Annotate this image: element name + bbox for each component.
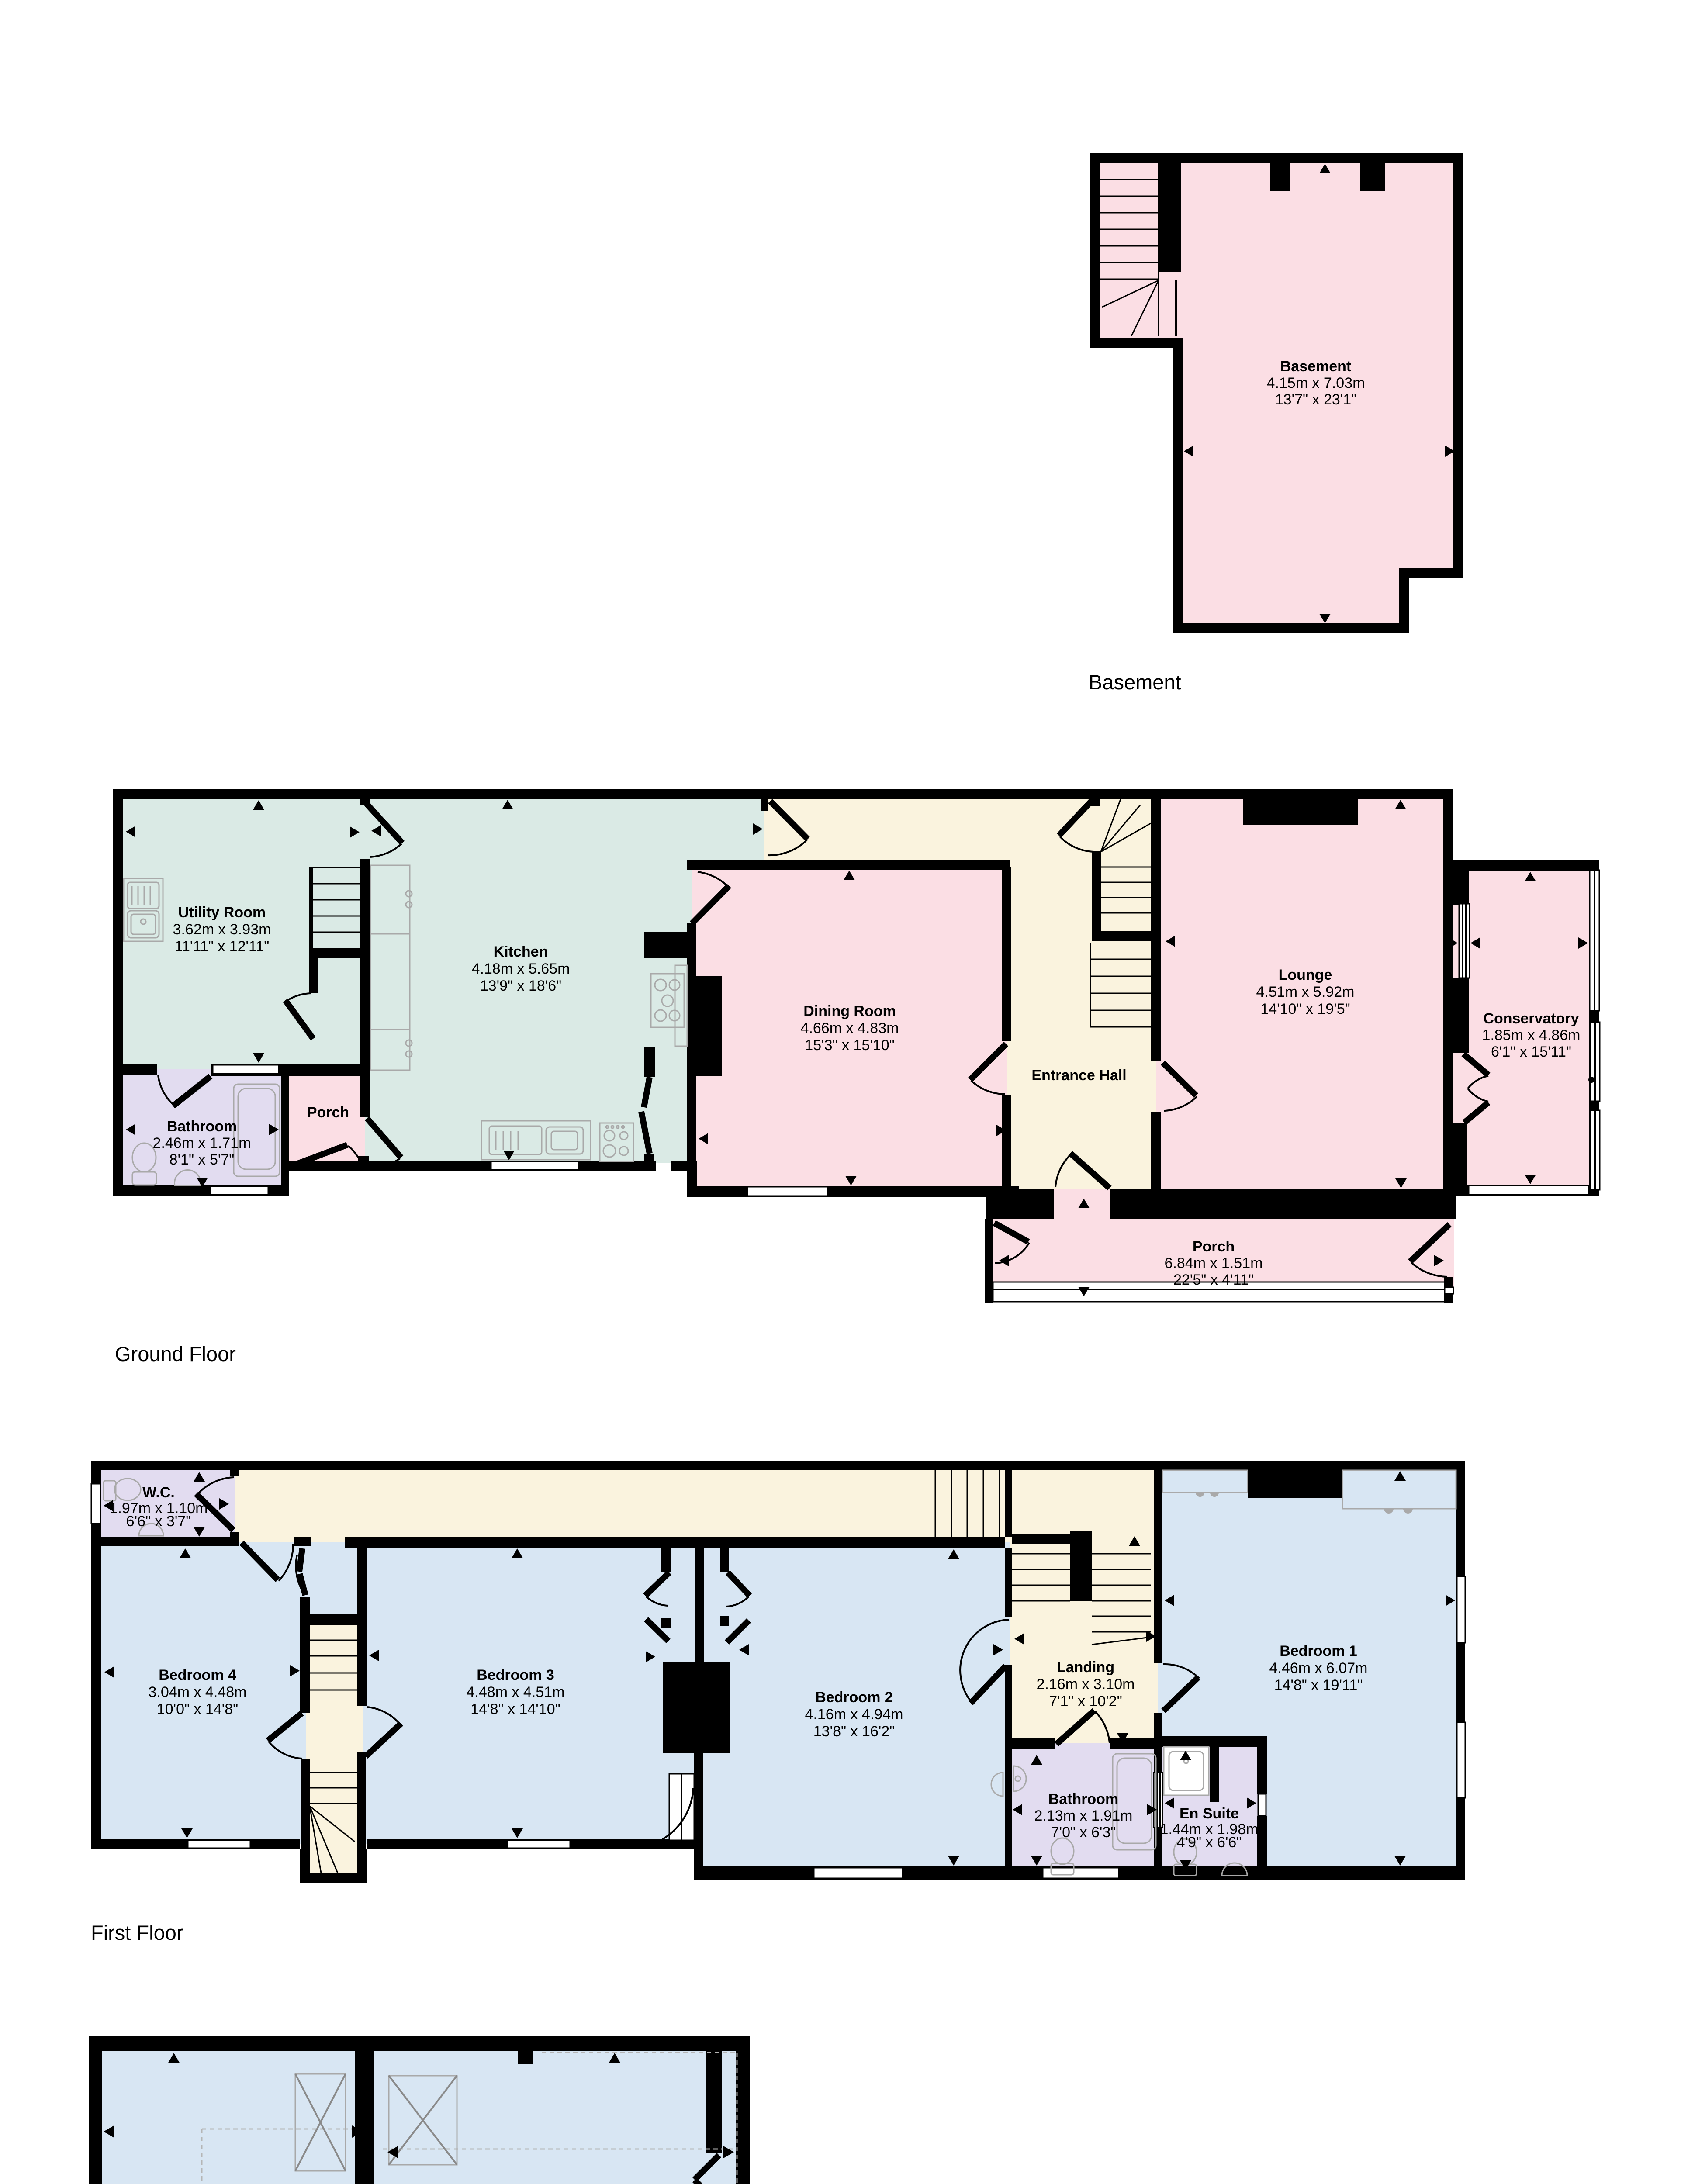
svg-text:Landing: Landing [1057, 1659, 1114, 1676]
svg-text:6'1" x 15'11": 6'1" x 15'11" [1491, 1044, 1571, 1060]
svg-text:11'11" x 12'11": 11'11" x 12'11" [175, 938, 270, 955]
svg-text:13'8" x 16'2": 13'8" x 16'2" [813, 1723, 895, 1740]
svg-text:4'9" x 6'6": 4'9" x 6'6" [1177, 1834, 1242, 1851]
svg-text:14'8" x 19'11": 14'8" x 19'11" [1274, 1677, 1363, 1693]
svg-text:6.84m x 1.51m: 6.84m x 1.51m [1165, 1255, 1263, 1272]
svg-text:Bedroom 4: Bedroom 4 [159, 1667, 236, 1683]
svg-text:4.51m x 5.92m: 4.51m x 5.92m [1256, 984, 1355, 1000]
svg-text:First Floor: First Floor [91, 1921, 183, 1944]
svg-text:Utility Room: Utility Room [178, 904, 266, 921]
svg-text:4.48m x 4.51m: 4.48m x 4.51m [467, 1684, 565, 1700]
svg-text:4.66m x 4.83m: 4.66m x 4.83m [801, 1020, 899, 1037]
svg-text:15'3" x 15'10": 15'3" x 15'10" [805, 1037, 894, 1054]
svg-text:2.46m x 1.71m: 2.46m x 1.71m [153, 1135, 251, 1151]
svg-text:2.13m x 1.91m: 2.13m x 1.91m [1034, 1807, 1133, 1824]
svg-text:2.16m x 3.10m: 2.16m x 3.10m [1037, 1676, 1135, 1693]
svg-text:14'8" x 14'10": 14'8" x 14'10" [470, 1701, 560, 1717]
svg-text:Porch: Porch [1193, 1238, 1235, 1255]
svg-text:Bedroom 1: Bedroom 1 [1280, 1643, 1357, 1659]
svg-text:4.16m x 4.94m: 4.16m x 4.94m [805, 1706, 903, 1723]
svg-text:Dining Room: Dining Room [803, 1003, 896, 1019]
svg-text:Conservatory: Conservatory [1483, 1010, 1579, 1027]
svg-text:Lounge: Lounge [1279, 967, 1332, 983]
svg-text:Basement: Basement [1280, 358, 1352, 375]
svg-text:Ground Floor: Ground Floor [115, 1342, 236, 1365]
svg-text:3.04m x 4.48m: 3.04m x 4.48m [149, 1684, 247, 1700]
svg-text:14'10" x 19'5": 14'10" x 19'5" [1260, 1001, 1350, 1017]
svg-text:Entrance Hall: Entrance Hall [1031, 1067, 1126, 1084]
svg-text:13'9" x 18'6": 13'9" x 18'6" [480, 978, 561, 994]
svg-text:7'1" x 10'2": 7'1" x 10'2" [1049, 1693, 1122, 1710]
svg-text:8'1" x 5'7": 8'1" x 5'7" [169, 1151, 235, 1168]
svg-text:13'7" x 23'1": 13'7" x 23'1" [1275, 391, 1356, 408]
svg-text:Bathroom: Bathroom [167, 1118, 237, 1135]
svg-text:4.46m x 6.07m: 4.46m x 6.07m [1269, 1660, 1368, 1676]
svg-text:Bedroom 3: Bedroom 3 [477, 1667, 554, 1683]
svg-text:7'0" x 6'3": 7'0" x 6'3" [1051, 1824, 1116, 1841]
svg-text:22'5" x 4'11": 22'5" x 4'11" [1173, 1272, 1254, 1288]
svg-text:Basement: Basement [1089, 670, 1181, 694]
svg-text:4.15m x 7.03m: 4.15m x 7.03m [1267, 375, 1365, 391]
svg-text:En Suite: En Suite [1180, 1805, 1239, 1822]
svg-text:W.C.: W.C. [142, 1484, 175, 1501]
svg-text:Bathroom: Bathroom [1048, 1791, 1119, 1807]
svg-text:Kitchen: Kitchen [494, 943, 548, 960]
svg-text:3.62m x 3.93m: 3.62m x 3.93m [173, 921, 271, 938]
svg-text:4.18m x 5.65m: 4.18m x 5.65m [472, 961, 570, 977]
svg-text:6'6" x 3'7": 6'6" x 3'7" [126, 1513, 191, 1530]
svg-text:Porch: Porch [307, 1104, 349, 1121]
svg-text:10'0" x 14'8": 10'0" x 14'8" [157, 1701, 238, 1717]
svg-text:Bedroom 2: Bedroom 2 [815, 1689, 893, 1706]
svg-text:1.85m x 4.86m: 1.85m x 4.86m [1482, 1027, 1581, 1044]
